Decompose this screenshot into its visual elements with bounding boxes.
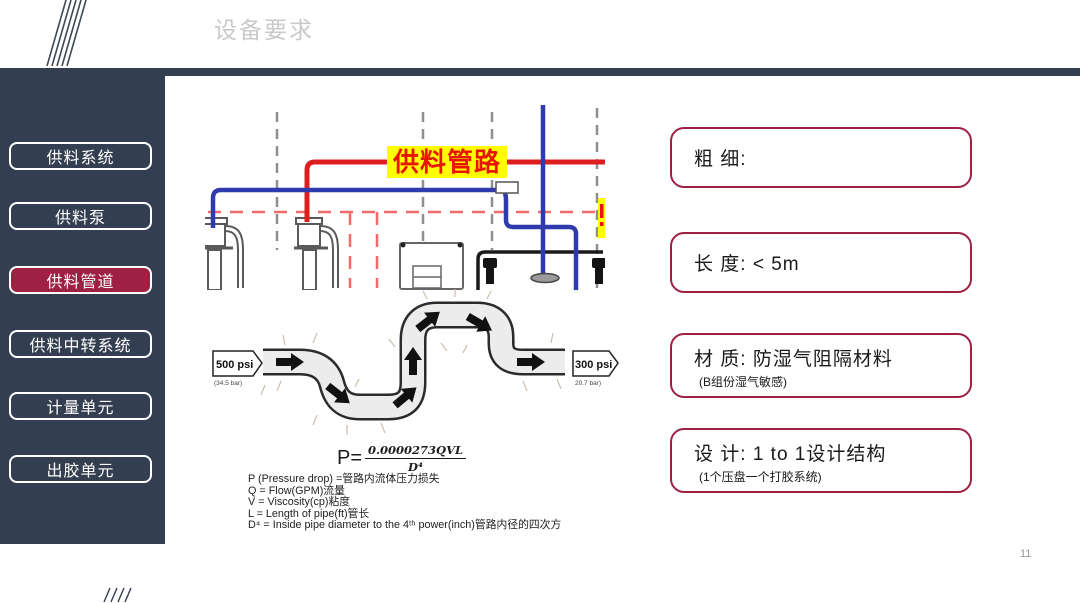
- svg-text:300 psi: 300 psi: [575, 359, 612, 371]
- requirement-box-length: 长 度: < 5m: [670, 232, 972, 293]
- requirement-box-material: 材 质: 防湿气阻隔材料 (B组份湿气敏感): [670, 333, 972, 398]
- requirement-subtitle: (1个压盘一个打胶系统): [672, 468, 970, 485]
- svg-text:20.7 bar): 20.7 bar): [575, 380, 601, 387]
- formula-denominator: D⁴: [408, 459, 423, 474]
- sidebar-item-feed-transfer[interactable]: 供料中转系统: [9, 330, 152, 358]
- pump-symbol: [205, 218, 243, 290]
- blue-pipes: [213, 105, 576, 290]
- corner-slashes-icon: [40, 0, 100, 66]
- top-bar: [0, 68, 1080, 76]
- formula-lhs: P=: [337, 447, 362, 470]
- definition-line: D⁴ = Inside pipe diameter to the 4ᵗʰ pow…: [248, 520, 561, 532]
- svg-text:(34.5 bar): (34.5 bar): [214, 380, 242, 387]
- requirement-box-thickness: 粗 细:: [670, 127, 972, 188]
- requirement-title: 粗 细:: [672, 144, 747, 171]
- formula-definitions: P (Pressure drop) =管路内流体压力损失 Q = Flow(GP…: [248, 474, 561, 532]
- supply-pipeline-label: 供料管路: [387, 146, 507, 178]
- sidebar-item-metering-unit[interactable]: 计量单元: [9, 392, 152, 420]
- pressure-drop-formula: P= 0.0000273QVL D⁴: [337, 443, 466, 474]
- manifold-line: [478, 252, 603, 290]
- sidebar-item-dispense-unit[interactable]: 出胶单元: [9, 455, 152, 483]
- sidebar-item-feed-system[interactable]: 供料系统: [9, 142, 152, 170]
- page-title: 设备要求: [214, 11, 314, 45]
- sidebar-item-feed-pump[interactable]: 供料泵: [9, 202, 152, 230]
- drum-top: [531, 274, 559, 283]
- requirement-title: 长 度: < 5m: [672, 249, 800, 276]
- tank-symbol: [400, 243, 463, 290]
- outlet-pressure-label: 300 psi 20.7 bar): [573, 351, 618, 387]
- requirement-box-design: 设 计: 1 to 1设计结构 (1个压盘一个打胶系统): [670, 428, 972, 493]
- pipe-fitting: [496, 182, 518, 193]
- truncated-label-fragment: [598, 198, 605, 238]
- requirement-subtitle: (B组份湿气敏感): [672, 373, 970, 390]
- inlet-pressure-label: 500 psi (34.5 bar): [213, 351, 262, 387]
- sidebar-item-feed-pipeline[interactable]: 供料管道: [9, 266, 152, 294]
- pressure-drop-diagram: 500 psi (34.5 bar) 300 psi 20.7 bar): [205, 287, 625, 445]
- page-number: 11: [1020, 548, 1031, 560]
- formula-numerator: 0.0000273QVL: [365, 443, 466, 459]
- footer-slashes-icon: [100, 586, 140, 603]
- requirement-title: 材 质: 防湿气阻隔材料: [672, 344, 970, 371]
- slide: 设备要求 供料系统 供料泵 供料管道 供料中转系统 计量单元 出胶单元: [0, 0, 1080, 603]
- requirement-title: 设 计: 1 to 1设计结构: [672, 439, 970, 466]
- pump-symbol: [294, 218, 338, 290]
- svg-text:500 psi: 500 psi: [216, 359, 253, 371]
- formula-fraction: 0.0000273QVL D⁴: [365, 443, 466, 474]
- piping-schematic-image: [205, 100, 605, 290]
- definition-line: P (Pressure drop) =管路内流体压力损失: [248, 474, 561, 486]
